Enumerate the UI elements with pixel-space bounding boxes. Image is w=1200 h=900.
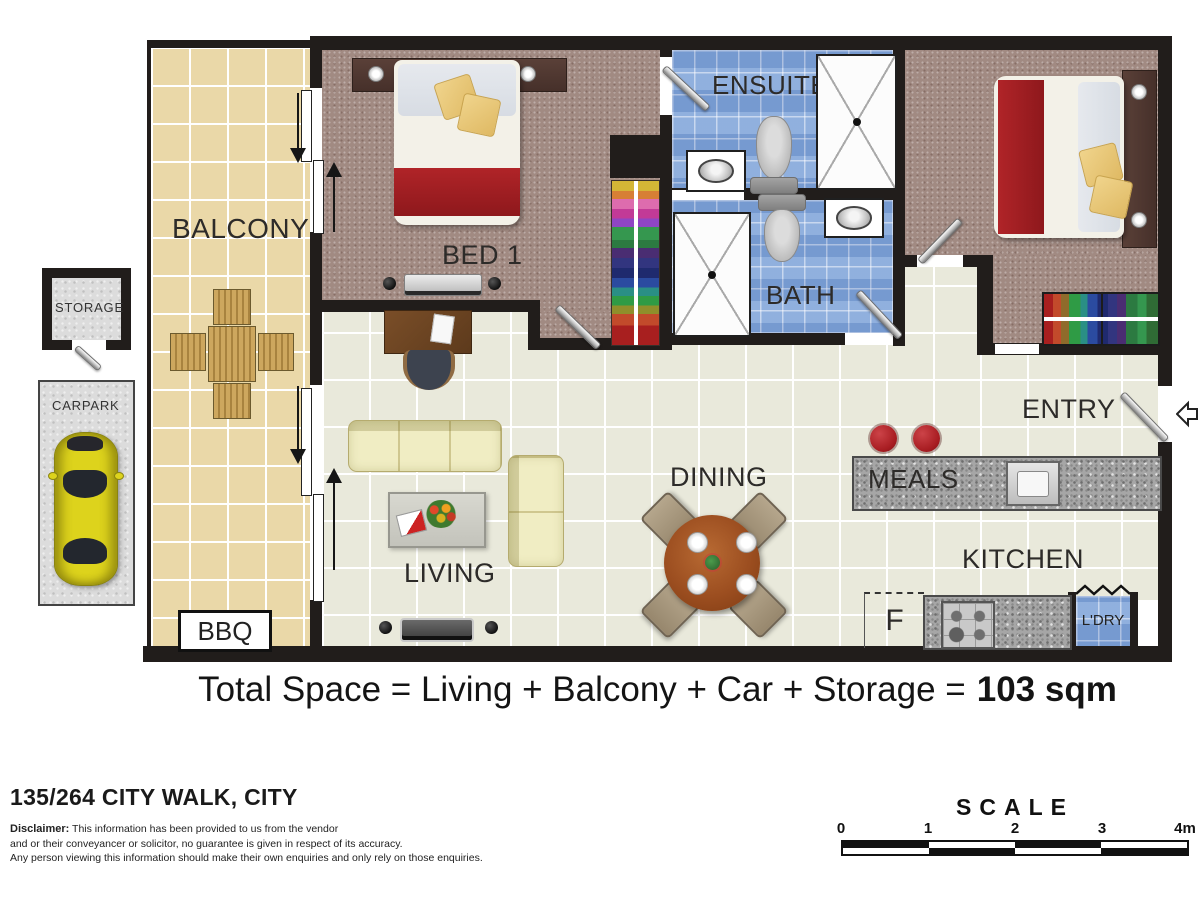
bed1-label: BED 1 bbox=[442, 240, 523, 271]
bed2-blanket bbox=[998, 80, 1044, 234]
ensuite-shower bbox=[816, 54, 897, 190]
kitchen-sink bbox=[1006, 461, 1060, 506]
scale-tick: 3 bbox=[1098, 820, 1106, 837]
floor-plan-page: BALCONY BBQ BED 1 ENSUITE BATH BED 2 E bbox=[0, 0, 1200, 900]
bath-toilet bbox=[756, 196, 808, 262]
car-mirror bbox=[114, 472, 124, 480]
ensuite-toilet bbox=[748, 116, 800, 192]
bed1-blanket bbox=[394, 168, 520, 216]
dresser-knob bbox=[383, 277, 396, 290]
bath-shower bbox=[673, 212, 751, 337]
bbq-label: BBQ bbox=[198, 616, 253, 647]
window-laundry bbox=[1138, 600, 1158, 646]
wall-balcony-left bbox=[147, 40, 151, 650]
car-windshield bbox=[63, 470, 107, 498]
car-rear-window bbox=[63, 538, 107, 564]
scale-title: SCALE bbox=[841, 794, 1189, 821]
disclaimer-line-1: Disclaimer: This information has been pr… bbox=[10, 822, 483, 837]
meals-label: MEALS bbox=[868, 464, 959, 495]
disclaimer-line-2: and or their conveyancer or solicitor, n… bbox=[10, 837, 483, 852]
ensuite-sink bbox=[686, 150, 746, 192]
kitchen-label: KITCHEN bbox=[962, 544, 1084, 575]
outdoor-chair bbox=[213, 289, 251, 325]
scale-bar-row bbox=[843, 848, 1187, 854]
door-swing-arrow bbox=[333, 482, 335, 570]
sliding-door-panel bbox=[313, 160, 324, 234]
entry-label: ENTRY bbox=[1022, 394, 1116, 425]
bed1-pillow bbox=[456, 92, 501, 137]
door-swing-arrow bbox=[297, 386, 299, 450]
laundry-zigzag-icon bbox=[1076, 584, 1130, 596]
toilet-bowl bbox=[764, 209, 800, 262]
bedside-lamp bbox=[1131, 212, 1147, 228]
bed1-dresser bbox=[404, 274, 482, 296]
living-label: LIVING bbox=[404, 558, 496, 589]
scale-tick: 4m bbox=[1174, 820, 1196, 837]
scale-segment bbox=[929, 848, 1015, 854]
speaker bbox=[485, 621, 498, 634]
wall-bed1-step bbox=[528, 300, 540, 350]
bath-sink bbox=[824, 198, 884, 238]
bedside-lamp bbox=[368, 66, 384, 82]
scale-bar bbox=[841, 840, 1189, 856]
door-swing-arrow bbox=[297, 93, 299, 149]
carpark-label: CARPARK bbox=[52, 398, 119, 413]
window-bed2 bbox=[995, 344, 1039, 354]
scale-tick: 2 bbox=[1011, 820, 1019, 837]
bbq-unit: BBQ bbox=[178, 610, 272, 652]
scale-segment bbox=[1015, 848, 1101, 854]
fridge-space: F bbox=[864, 592, 924, 648]
dresser-knob bbox=[488, 277, 501, 290]
scale-segment bbox=[1101, 848, 1187, 854]
sofa-three-seater bbox=[348, 420, 502, 472]
bed2-wardrobe bbox=[1042, 292, 1160, 346]
dining-label: DINING bbox=[670, 462, 768, 493]
sliding-door-panel bbox=[313, 494, 324, 602]
disclaimer-label: Disclaimer: bbox=[10, 823, 69, 835]
scale-tick: 1 bbox=[924, 820, 932, 837]
outdoor-table bbox=[208, 326, 256, 382]
scale-ticks: 0 1 2 3 4m bbox=[821, 820, 1200, 838]
speaker bbox=[379, 621, 392, 634]
toilet-tank bbox=[750, 177, 798, 194]
bar-stool bbox=[870, 425, 897, 452]
fridge-label: F bbox=[885, 604, 903, 638]
scale-segment bbox=[843, 848, 929, 854]
place-setting bbox=[736, 574, 757, 595]
bath-label: BATH bbox=[766, 280, 835, 311]
bedside-lamp bbox=[1131, 84, 1147, 100]
wall-laundry-right bbox=[1130, 592, 1138, 646]
sliding-door-panel bbox=[301, 388, 312, 496]
desk-paper bbox=[430, 314, 455, 345]
total-space-prefix: Total Space = Living + Balcony + Car + S… bbox=[198, 670, 966, 709]
place-setting bbox=[736, 532, 757, 553]
entry-direction-arrow-icon bbox=[1176, 398, 1198, 430]
sofa-two-seater bbox=[508, 455, 564, 567]
bed2-pillow bbox=[1088, 174, 1133, 219]
place-setting bbox=[687, 574, 708, 595]
kitchen-sink-basin bbox=[1017, 471, 1049, 497]
wall-closet-nook bbox=[610, 135, 662, 178]
wall-top bbox=[310, 36, 1172, 50]
disclaimer-line-3: Any person viewing this information shou… bbox=[10, 851, 483, 866]
balcony-label: BALCONY bbox=[172, 213, 309, 245]
disclaimer-text: Disclaimer: This information has been pr… bbox=[10, 822, 483, 866]
outdoor-chair bbox=[170, 333, 206, 371]
coffee-table-flowers bbox=[424, 500, 458, 528]
tv-unit bbox=[400, 618, 474, 642]
wall-bed2-step bbox=[977, 255, 993, 355]
place-setting bbox=[687, 532, 708, 553]
storage-label: STORAGE bbox=[55, 300, 124, 315]
cooktop bbox=[941, 601, 995, 649]
bed1-wardrobe bbox=[611, 180, 660, 346]
door-swing-arrow bbox=[333, 176, 335, 232]
property-address: 135/264 CITY WALK, CITY bbox=[10, 784, 298, 811]
outdoor-chair bbox=[213, 383, 251, 419]
toilet-bowl bbox=[756, 116, 792, 179]
total-space-value: 103 sqm bbox=[977, 670, 1117, 709]
car-mirror bbox=[48, 472, 58, 480]
total-space-text: Total Space = Living + Balcony + Car + S… bbox=[140, 664, 1175, 716]
car-grille bbox=[67, 436, 103, 451]
laundry-label: L'DRY bbox=[1076, 612, 1130, 629]
bedside-lamp bbox=[520, 66, 536, 82]
door-opening-bath bbox=[845, 333, 893, 345]
bar-stool bbox=[913, 425, 940, 452]
scale-tick: 0 bbox=[837, 820, 845, 837]
ensuite-label: ENSUITE bbox=[712, 70, 828, 101]
outdoor-chair bbox=[258, 333, 294, 371]
wall-balcony-top bbox=[147, 40, 310, 48]
table-centerpiece bbox=[705, 555, 720, 570]
desk bbox=[384, 310, 472, 354]
